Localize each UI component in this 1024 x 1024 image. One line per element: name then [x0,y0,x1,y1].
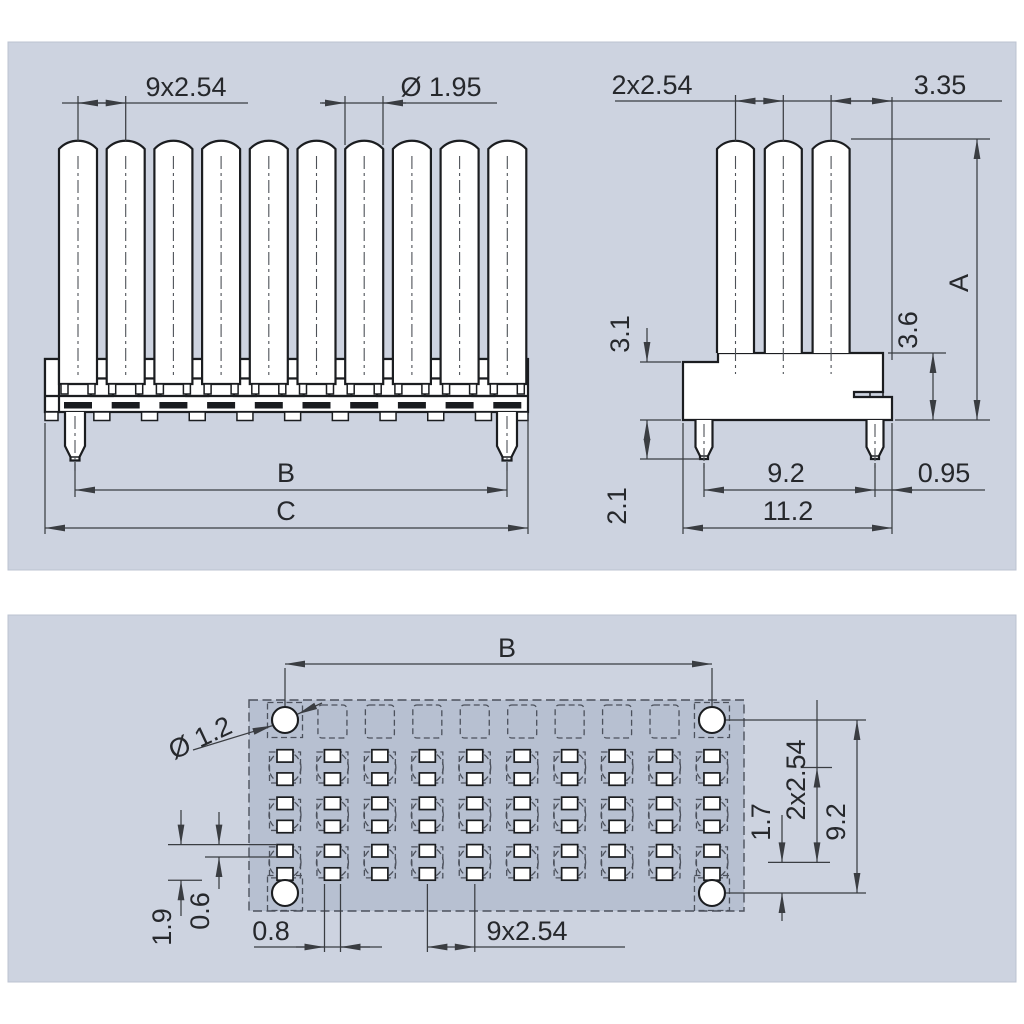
fp-pad [419,845,435,857]
dim-side-pitch: 2x2.54 [611,70,692,100]
fp-pad [467,773,483,785]
front-foot [475,412,491,421]
dim-side-pin-to-edge: 3.35 [914,70,967,100]
front-contact [252,384,259,394]
front-contact [347,384,354,394]
front-foot-end [45,412,58,421]
fp-pad [372,820,388,832]
front-contact [395,384,402,394]
fp-pad [562,750,578,762]
dim-side-seat-to-base: 3.6 [893,311,923,349]
fp-pad [419,820,435,832]
fp-pad [514,845,530,857]
fp-pad [372,773,388,785]
fp-pad [657,750,673,762]
fp-pad [467,797,483,809]
dim-side-overall-height: A [944,274,974,292]
fp-pad [324,773,340,785]
fp-pad [704,797,720,809]
fp-pad [562,820,578,832]
fp-pad [277,773,293,785]
dim-front-peg-span: B [277,458,295,488]
front-foot [380,412,396,421]
front-foot [428,412,444,421]
dim-side-body-height: 3.1 [605,315,635,353]
fp-mounting-hole [272,707,298,733]
fp-pad [324,797,340,809]
fp-pad [372,845,388,857]
fp-mounting-hole [272,880,298,906]
fp-pad [609,868,625,880]
fp-pad [657,820,673,832]
front-contact [156,384,163,394]
front-contact [443,384,450,394]
front-foot [237,412,253,421]
dim-side-peg-span: 9.2 [767,458,805,488]
front-contact-slot [303,402,331,409]
fp-pad [419,773,435,785]
front-contact [470,384,477,394]
fp-pad [657,773,673,785]
front-contact-slot [255,402,283,409]
fp-pad [324,845,340,857]
front-contact [204,384,211,394]
fp-pad [277,750,293,762]
front-contact [88,384,95,394]
fp-pad [324,868,340,880]
dim-side-peg-length: 2.1 [602,487,632,525]
front-contact [300,384,307,394]
fp-pad [277,820,293,832]
fp-pad [609,845,625,857]
fp-pad [467,845,483,857]
dim-side-body-width: 11.2 [763,496,814,526]
fp-pad [704,820,720,832]
fp-pad [372,797,388,809]
front-contact-slot [398,402,426,409]
fp-pad [562,845,578,857]
dim-fp-hole-span-x: B [498,633,516,663]
fp-pad [657,845,673,857]
front-contact [136,384,143,394]
fp-pad [562,868,578,880]
fp-pad [467,868,483,880]
front-contact [109,384,116,394]
dim-side-peg-to-edge: 0.95 [918,458,971,488]
fp-pad [704,750,720,762]
dim-fp-last-row-to-hole: 1.7 [746,803,776,841]
fp-pad [514,797,530,809]
front-foot [94,412,110,421]
fp-pad [419,750,435,762]
fp-pad [419,797,435,809]
front-contact-slot [159,402,187,409]
fp-pad [704,845,720,857]
fp-pad [514,750,530,762]
front-housing-left-wall [45,359,59,412]
fp-pad [467,750,483,762]
fp-pad [324,820,340,832]
fp-mounting-hole [699,707,725,733]
front-contact [517,384,524,394]
dim-front-pin-diameter: Ø 1.95 [400,72,481,102]
fp-pad [609,797,625,809]
front-foot [332,412,348,421]
fp-pad [277,868,293,880]
dim-fp-pad-pair-height: 1.9 [147,908,177,946]
fp-pad [514,868,530,880]
fp-pad [609,750,625,762]
fp-pad [514,773,530,785]
fp-pad [657,797,673,809]
front-contact [422,384,429,394]
fp-pad [372,868,388,880]
front-contact-slot [350,402,378,409]
front-contact-slot [64,402,92,409]
fp-pad [372,750,388,762]
front-contact-slot [446,402,474,409]
front-foot [189,412,205,421]
front-contact [490,384,497,394]
front-contact [61,384,68,394]
fp-pad [657,868,673,880]
footprint-view [249,700,744,911]
fp-pad [704,773,720,785]
dim-fp-pitch: 9x2.54 [486,916,567,946]
dim-fp-pad-row-span: 2x2.54 [781,739,811,820]
front-housing-tabs [91,359,495,396]
dim-fp-pad-height: 0.6 [185,892,215,930]
fp-pad [704,868,720,880]
front-contact [327,384,334,394]
dim-fp-hole-span-y: 9.2 [821,803,851,841]
front-contact [183,384,190,394]
fp-pad [514,820,530,832]
dim-fp-pad-width: 0.8 [252,916,290,946]
dim-front-pitch: 9x2.54 [145,72,226,102]
fp-pad [562,773,578,785]
side-housing [683,353,892,420]
front-contact [374,384,381,394]
front-contact-slot [112,402,140,409]
front-foot [142,412,158,421]
dim-front-overall-width: C [276,496,296,526]
front-contact [279,384,286,394]
fp-pad [324,750,340,762]
fp-pad [562,797,578,809]
fp-pad [419,868,435,880]
fp-pad [467,820,483,832]
technical-drawing: 9x2.54 Ø 1.95 B C 2x2.54 3.35 A 3.6 [0,0,1024,1024]
fp-pad [609,773,625,785]
front-contact-slot [207,402,235,409]
fp-mounting-hole [699,880,725,906]
front-contact [231,384,238,394]
fp-pad [277,797,293,809]
front-contact-slot [493,402,521,409]
front-foot [285,412,301,421]
fp-pad [277,845,293,857]
fp-pad [609,820,625,832]
